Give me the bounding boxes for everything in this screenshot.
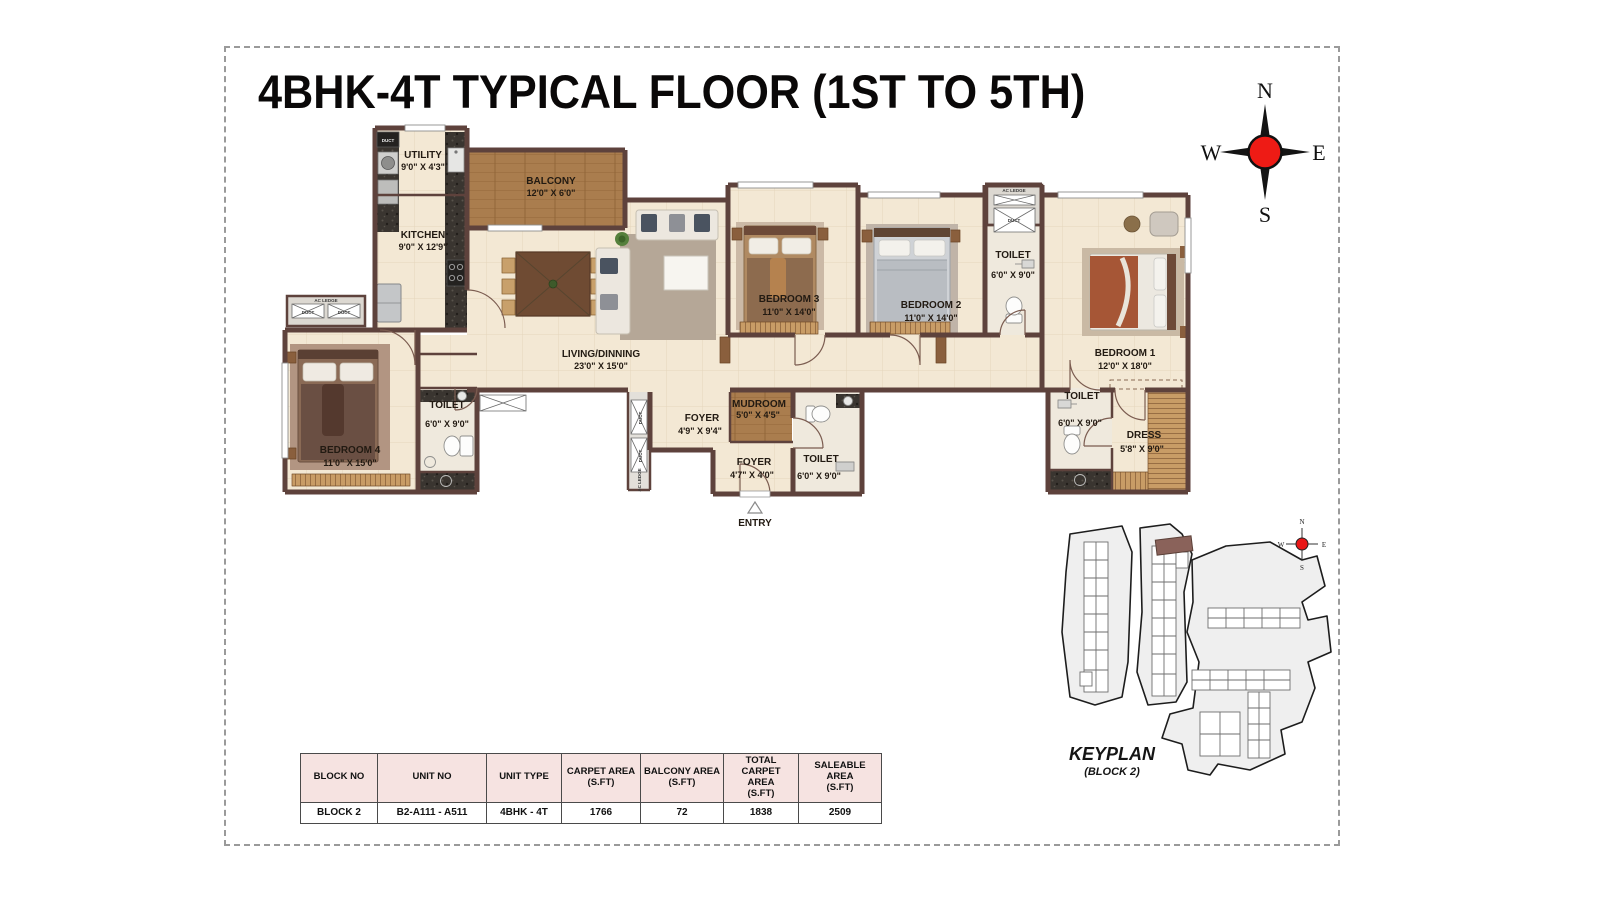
ac-ledge-label: AC LEDGE bbox=[637, 468, 642, 491]
ac-ledge-label: AC LEDGE bbox=[1002, 188, 1025, 193]
header-unit-no: UNIT NO bbox=[378, 754, 487, 803]
entry-label: ENTRY bbox=[738, 518, 772, 529]
value-carpet-area: 1766 bbox=[562, 802, 641, 823]
toilet-mid-dim: 6'0" X 9'0" bbox=[797, 471, 841, 481]
bedroom2-dim: 11'0" X 14'0" bbox=[904, 313, 957, 323]
kitchen-dim: 9'0" X 12'9" bbox=[399, 242, 448, 252]
header-total-carpet-area: TOTALCARPET AREA(S.FT) bbox=[724, 754, 799, 803]
balcony-dim: 12'0" X 6'0" bbox=[527, 188, 576, 198]
header-carpet-area: CARPET AREA(S.FT) bbox=[562, 754, 641, 803]
bedroom2-name: BEDROOM 2 bbox=[901, 300, 962, 311]
compass-e-label: E bbox=[1312, 140, 1325, 165]
bedroom3-name: BEDROOM 3 bbox=[759, 294, 820, 305]
foyer-entry-dim: 4'7" X 4'0" bbox=[730, 470, 774, 480]
dining-table-icon bbox=[502, 252, 604, 316]
wardrobe-bedroom3 bbox=[740, 322, 818, 334]
header-block-no: BLOCK NO bbox=[301, 754, 378, 803]
duct-label: DUCT bbox=[638, 412, 643, 425]
duct-label: DUCT bbox=[302, 310, 315, 315]
duct-label: DUCT bbox=[638, 450, 643, 463]
wardrobe-bedroom4 bbox=[292, 474, 410, 486]
dress-bench bbox=[1112, 472, 1148, 490]
dress-dim: 5'8" X 9'0" bbox=[1120, 444, 1164, 454]
entry-marker: ENTRY bbox=[738, 491, 772, 529]
bedroom1-name: BEDROOM 1 bbox=[1095, 348, 1156, 359]
foyer-main-name: FOYER bbox=[685, 413, 720, 424]
ac-ledge-label: AC LEDGE bbox=[314, 298, 337, 303]
living-dim: 23'0" X 15'0" bbox=[574, 361, 628, 371]
header-saleable-area: SALEABLE AREA(S.FT) bbox=[799, 754, 882, 803]
compass-w-label: W bbox=[1201, 140, 1222, 165]
value-unit-no: B2-A111 - A511 bbox=[378, 802, 487, 823]
bedroom3-dim: 11'0" X 14'0" bbox=[762, 307, 815, 317]
toilet-top-name: TOILET bbox=[995, 250, 1030, 261]
duct-label: DUCT bbox=[338, 310, 351, 315]
bedroom4-dim: 11'0" X 15'0" bbox=[323, 458, 376, 468]
value-total-carpet-area: 1838 bbox=[724, 802, 799, 823]
wardrobe-bedroom2 bbox=[870, 322, 950, 334]
console-table-icon bbox=[936, 337, 946, 363]
value-unit-type: 4BHK - 4T bbox=[487, 802, 562, 823]
value-balcony-area: 72 bbox=[641, 802, 724, 823]
mudroom-name: MUDROOM bbox=[732, 399, 786, 410]
toilet-left-name: TOILET bbox=[429, 400, 464, 411]
foyer-entry-name: FOYER bbox=[737, 457, 772, 468]
keyplan-compass-w: W bbox=[1278, 541, 1285, 549]
utility-dim: 9'0" X 4'3" bbox=[401, 162, 445, 172]
toilet-right-name: TOILET bbox=[1064, 391, 1099, 402]
foyer-main-dim: 4'9" X 9'4" bbox=[678, 426, 722, 436]
duct-label: DUCT bbox=[1008, 218, 1021, 223]
floor-plan: ENTRY UTILITY 9'0" X 4'3" KITCHEN 9'0" X… bbox=[270, 118, 1200, 548]
header-unit-type: UNIT TYPE bbox=[487, 754, 562, 803]
area-table-header-row: BLOCK NO UNIT NO UNIT TYPE CARPET AREA(S… bbox=[301, 754, 882, 803]
keyplan-compass-e: E bbox=[1322, 541, 1326, 549]
compass-s-label: S bbox=[1259, 202, 1271, 227]
toilet-mid-name: TOILET bbox=[803, 454, 838, 465]
compass-rose: N S W E bbox=[1200, 80, 1330, 230]
keyplan-title: KEYPLAN bbox=[1069, 744, 1156, 764]
compass-n-label: N bbox=[1257, 80, 1273, 103]
bedroom4-name: BEDROOM 4 bbox=[320, 445, 381, 456]
keyplan-compass-s: S bbox=[1300, 564, 1304, 572]
wardrobe-dress bbox=[1148, 392, 1186, 490]
toilet-top-dim: 6'0" X 9'0" bbox=[991, 270, 1035, 280]
duct-label: DUCT bbox=[382, 138, 395, 143]
value-saleable-area: 2509 bbox=[799, 802, 882, 823]
dress-name: DRESS bbox=[1127, 430, 1162, 441]
keyplan: N S W E KEYPLAN (BLOCK 2) bbox=[1040, 512, 1350, 802]
mudroom-dim: 5'0" X 4'5" bbox=[736, 410, 780, 420]
page-title: 4BHK-4T TYPICAL FLOOR (1ST TO 5TH) bbox=[258, 64, 1085, 119]
toilet-right-dim: 6'0" X 9'0" bbox=[1058, 418, 1102, 428]
keyplan-compass-n: N bbox=[1299, 518, 1304, 526]
area-table: BLOCK NO UNIT NO UNIT TYPE CARPET AREA(S… bbox=[300, 753, 882, 824]
value-block-no: BLOCK 2 bbox=[301, 802, 378, 823]
header-balcony-area: BALCONY AREA(S.FT) bbox=[641, 754, 724, 803]
area-table-value-row: BLOCK 2 B2-A111 - A511 4BHK - 4T 1766 72… bbox=[301, 802, 882, 823]
keyplan-subtitle: (BLOCK 2) bbox=[1084, 766, 1140, 778]
compass-center bbox=[1249, 136, 1282, 169]
bedroom1-dim: 12'0" X 18'0" bbox=[1098, 361, 1152, 371]
living-name: LIVING/DINNING bbox=[562, 349, 641, 360]
floorplan-page: 4BHK-4T TYPICAL FLOOR (1ST TO 5TH) N S W… bbox=[0, 0, 1600, 900]
utility-name: UTILITY bbox=[404, 150, 442, 161]
console-table-icon bbox=[720, 337, 730, 363]
kitchen-name: KITCHEN bbox=[401, 230, 445, 241]
balcony-name: BALCONY bbox=[526, 176, 576, 187]
toilet-left-dim: 6'0" X 9'0" bbox=[425, 419, 469, 429]
